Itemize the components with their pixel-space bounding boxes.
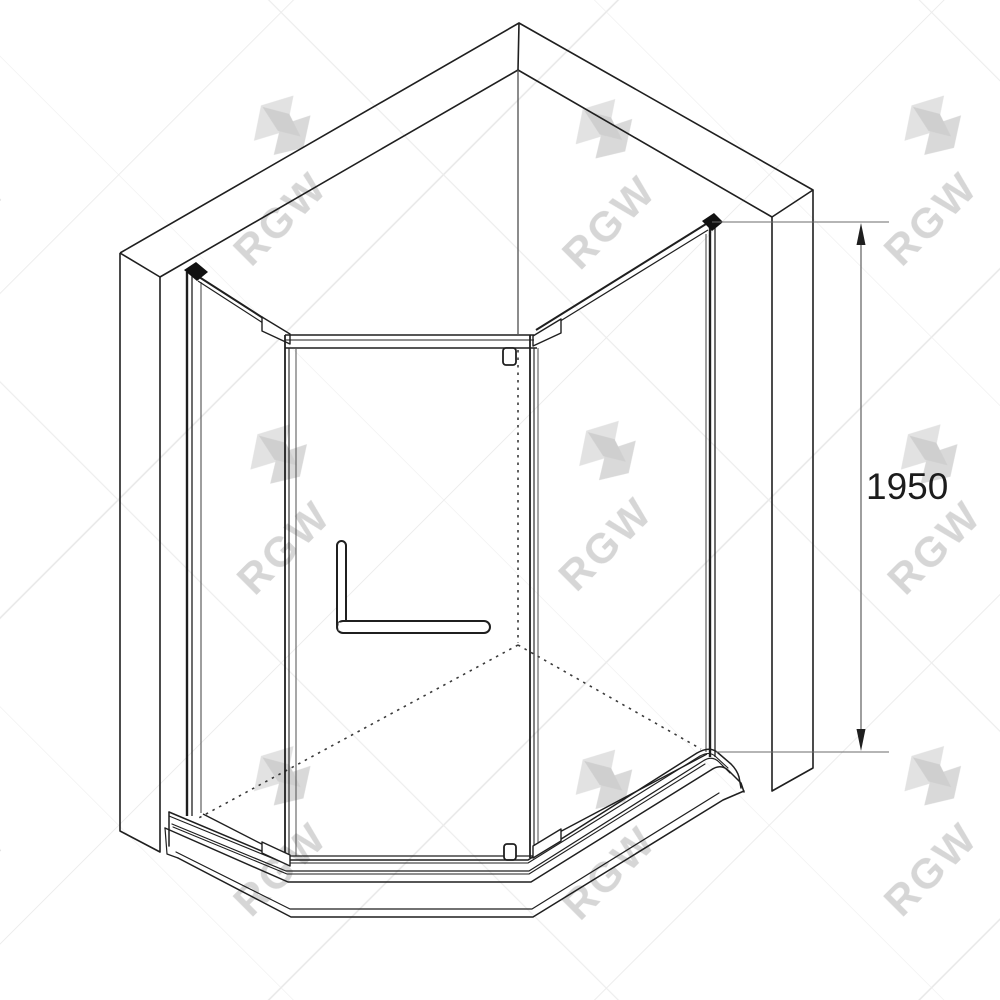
hinge-clamp-top xyxy=(503,348,516,365)
handle-vertical-bar xyxy=(337,541,346,629)
handle-horizontal-bar xyxy=(337,621,490,633)
drawing-canvas: RGW RGW xyxy=(0,0,1000,1000)
hinge-clamp-bottom xyxy=(504,844,516,860)
shower-enclosure-drawing: RGW RGW xyxy=(0,0,1000,1000)
dimension-value: 1950 xyxy=(866,466,948,507)
watermark-layer xyxy=(0,0,1000,1000)
